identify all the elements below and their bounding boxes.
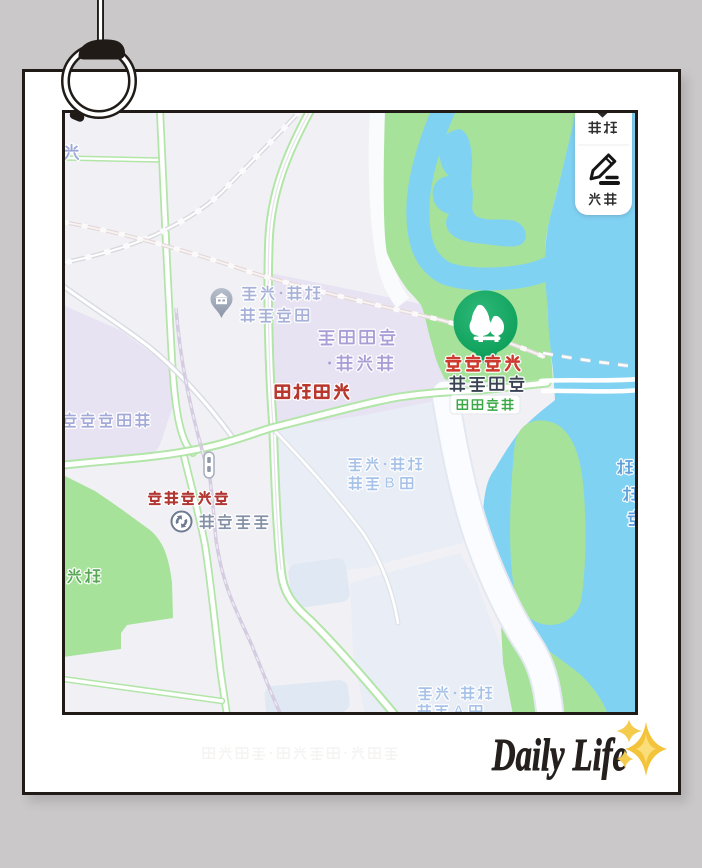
svg-text:B: B bbox=[385, 475, 395, 492]
svg-text:A: A bbox=[454, 703, 465, 714]
svg-text:Daily Life: Daily Life bbox=[491, 729, 627, 780]
